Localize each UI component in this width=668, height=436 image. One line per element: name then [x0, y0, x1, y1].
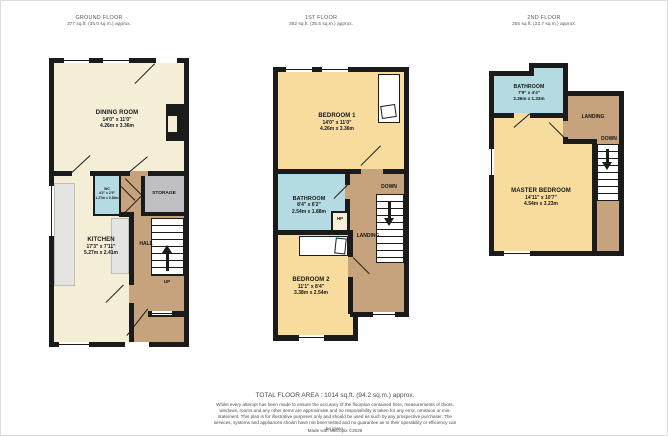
bathroom-label: BATHROOM 7'9" x 4'4" 2.36m x 1.33m — [495, 84, 563, 101]
wall — [619, 91, 624, 256]
master-bedroom-label: MASTER BEDROOM 14'11" x 10'7" 4.54m x 3.… — [491, 188, 591, 207]
room-name: MASTER BEDROOM — [491, 188, 591, 195]
wall — [489, 71, 534, 76]
window — [504, 251, 530, 256]
landing-label: LANDING — [573, 115, 613, 121]
wall — [563, 91, 624, 96]
stairs-label: DOWN — [594, 137, 624, 143]
down-arrow — [606, 149, 609, 163]
window — [489, 149, 494, 175]
floorplan-page: GROUND FLOOR 377 sq.ft. (35.0 sq.m.) app… — [0, 0, 668, 436]
total-floor-area: TOTAL FLOOR AREA : 1014 sq.ft. (94.2 sq.… — [135, 392, 535, 399]
room-dims-metric: 2.36m x 1.33m — [495, 96, 563, 102]
landing-under-stairs — [597, 199, 619, 251]
down-arrow-head — [602, 162, 612, 170]
room-dims-metric: 4.54m x 3.23m — [491, 201, 591, 207]
credit-text: Made with Metropix ©2026 — [213, 428, 457, 433]
second-floor-plan: DOWN LANDING BATHROOM 7'9" x 4'4" 2.36m … — [1, 1, 668, 436]
door-opening — [563, 121, 568, 137]
